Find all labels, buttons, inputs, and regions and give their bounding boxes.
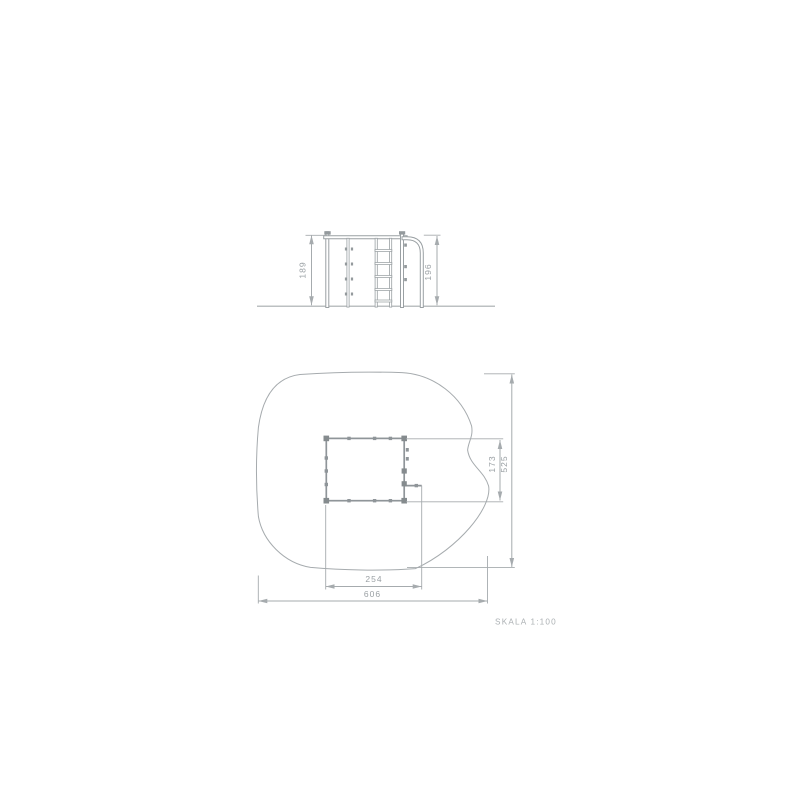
joint-marker <box>325 456 328 459</box>
joint-marker <box>415 484 418 487</box>
climbing-knob <box>345 248 347 251</box>
climbing-knob <box>404 244 407 247</box>
dim-label-196: 196 <box>423 263 433 280</box>
climbing-knob <box>404 265 407 268</box>
climbing-knob <box>351 248 353 251</box>
scale-label: SKALA 1:100 <box>495 618 557 627</box>
curved-exit-pole <box>404 238 422 306</box>
joint-marker <box>389 499 392 502</box>
climbing-knob <box>345 263 347 266</box>
post-marker <box>402 481 407 486</box>
dim-label-606: 606 <box>364 589 381 599</box>
left-post <box>324 231 330 306</box>
joint-marker <box>325 483 328 486</box>
climbing-pole <box>345 239 353 306</box>
climbing-frame-structure <box>324 231 422 306</box>
equipment-footprint <box>324 436 422 504</box>
post-marker <box>401 498 407 504</box>
joint-marker <box>347 437 350 440</box>
dim-label-254: 254 <box>365 574 382 584</box>
plan-dimensions <box>258 374 515 604</box>
joint-marker <box>373 437 376 440</box>
climbing-knob <box>345 293 347 296</box>
post-marker <box>324 436 330 442</box>
drawing-svg: 189 196 <box>0 0 800 800</box>
technical-drawing-canvas: 189 196 <box>0 0 800 800</box>
dim-label-173: 173 <box>487 455 497 472</box>
post-marker <box>402 468 407 473</box>
climbing-knob <box>345 278 347 281</box>
safety-zone-outline <box>257 372 489 570</box>
joint-marker <box>373 499 376 502</box>
dim-label-525: 525 <box>499 455 509 472</box>
joint-marker <box>389 437 392 440</box>
knob-marker <box>406 457 409 461</box>
plan-view: 254 606 173 525 <box>257 372 515 603</box>
ladder <box>376 239 391 306</box>
post-cap <box>324 231 330 234</box>
climbing-knob <box>351 293 353 296</box>
knob-marker <box>406 448 409 452</box>
climbing-knob <box>351 278 353 281</box>
right-post <box>399 231 407 306</box>
elevation-view: 189 196 <box>257 231 495 306</box>
post-cap <box>399 231 405 234</box>
frame-footprint-rect <box>326 438 404 500</box>
climbing-knob <box>404 278 407 281</box>
climbing-knob <box>351 263 353 266</box>
joint-marker <box>347 499 350 502</box>
post-marker <box>324 498 330 504</box>
joint-marker <box>325 469 328 472</box>
dim-label-189: 189 <box>298 261 308 278</box>
